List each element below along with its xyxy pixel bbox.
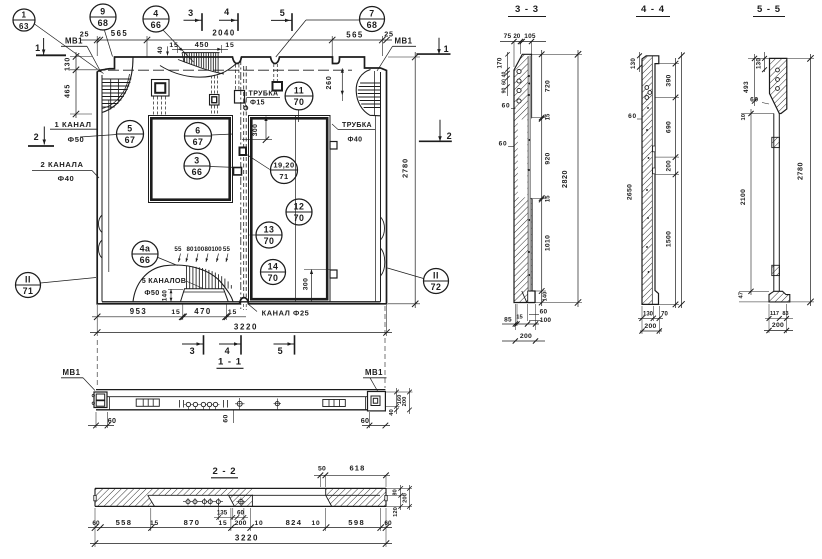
svg-text:66: 66 [140,255,151,265]
svg-text:90: 90 [502,88,508,94]
svg-text:70: 70 [268,273,279,283]
svg-text:25: 25 [384,30,394,39]
svg-text:390: 390 [666,74,673,86]
svg-text:120: 120 [393,507,399,517]
svg-text:67: 67 [125,135,136,145]
svg-text:2100: 2100 [740,189,747,205]
svg-text:МВ1: МВ1 [65,37,83,46]
svg-text:МВ1: МВ1 [63,368,81,377]
svg-text:200: 200 [644,323,656,330]
svg-text:2650: 2650 [627,184,634,200]
svg-text:493: 493 [743,81,750,93]
svg-text:3 - 3: 3 - 3 [515,4,539,15]
svg-text:300: 300 [303,278,310,291]
svg-text:КАНАЛ Ф25: КАНАЛ Ф25 [262,309,310,318]
svg-text:40: 40 [157,46,164,54]
svg-text:12: 12 [294,201,305,211]
svg-text:15: 15 [169,42,178,49]
svg-text:130: 130 [630,58,637,69]
svg-text:14: 14 [268,261,279,271]
svg-text:15: 15 [516,315,523,321]
svg-text:1: 1 [35,43,41,53]
svg-text:80: 80 [393,489,399,495]
svg-text:465: 465 [65,84,72,98]
svg-text:II: II [433,270,439,280]
svg-text:1 КАНАЛ: 1 КАНАЛ [54,120,91,129]
svg-text:10: 10 [312,520,321,527]
svg-text:100: 100 [540,317,552,324]
svg-text:450: 450 [195,40,210,49]
svg-text:МВ1: МВ1 [395,37,413,46]
svg-text:67: 67 [193,137,204,147]
svg-text:1010: 1010 [545,235,552,251]
svg-text:Ф40: Ф40 [58,174,75,183]
svg-text:60: 60 [384,520,392,527]
svg-text:55: 55 [174,246,182,253]
svg-text:565: 565 [346,31,364,40]
svg-text:5 - 5: 5 - 5 [757,4,781,15]
svg-text:4 - 4: 4 - 4 [641,4,665,15]
svg-text:68: 68 [367,20,378,30]
svg-text:50: 50 [318,466,326,473]
svg-text:690: 690 [666,121,673,133]
svg-text:1: 1 [22,10,27,19]
svg-text:100: 100 [211,246,222,253]
svg-text:953: 953 [130,307,148,316]
svg-text:10: 10 [255,520,264,527]
svg-text:Ф15: Ф15 [250,100,265,107]
svg-text:2: 2 [34,132,40,142]
svg-text:2820: 2820 [560,170,569,188]
svg-text:II: II [25,274,31,284]
svg-text:60: 60 [750,97,759,104]
svg-text:6: 6 [195,125,200,135]
svg-text:15: 15 [150,520,159,527]
svg-text:15: 15 [546,195,552,202]
svg-text:19,20: 19,20 [273,160,294,169]
svg-text:47: 47 [739,292,745,298]
svg-text:60: 60 [92,520,100,527]
svg-text:13: 13 [264,224,275,234]
svg-text:3: 3 [194,155,199,165]
svg-text:70: 70 [294,97,305,107]
svg-text:618: 618 [349,464,365,473]
svg-text:2 КАНАЛА: 2 КАНАЛА [40,160,83,169]
svg-text:15: 15 [228,309,237,316]
svg-text:71: 71 [23,286,34,296]
svg-text:83: 83 [782,311,788,317]
svg-text:130: 130 [65,57,72,71]
svg-text:4: 4 [224,7,230,17]
svg-text:920: 920 [545,152,552,164]
svg-text:70: 70 [661,312,668,318]
svg-text:5 КАНАЛОВ: 5 КАНАЛОВ [142,276,187,285]
svg-text:1: 1 [444,44,450,54]
svg-text:60: 60 [237,510,244,517]
svg-text:200: 200 [520,333,532,340]
svg-text:200: 200 [235,520,247,527]
svg-text:60: 60 [361,416,370,425]
svg-text:60: 60 [223,414,230,422]
svg-text:15: 15 [171,309,180,316]
svg-text:2780: 2780 [401,158,410,178]
svg-text:105: 105 [524,33,536,40]
svg-text:72: 72 [431,282,442,292]
svg-text:2780: 2780 [796,162,805,180]
svg-text:470: 470 [194,307,212,316]
svg-text:70: 70 [294,213,305,223]
svg-text:4а: 4а [140,243,151,253]
svg-text:Ф40: Ф40 [348,137,363,144]
svg-text:15: 15 [225,42,234,49]
svg-text:5: 5 [280,8,286,18]
svg-text:85: 85 [504,317,512,324]
svg-text:2 - 2: 2 - 2 [212,466,236,477]
svg-text:68: 68 [98,18,109,28]
svg-text:3220: 3220 [234,323,258,332]
svg-text:558: 558 [116,518,133,527]
svg-text:3: 3 [190,346,196,356]
svg-text:565: 565 [111,29,129,38]
svg-text:300: 300 [252,124,259,137]
svg-text:10: 10 [741,114,747,120]
svg-text:4: 4 [153,8,158,18]
svg-text:20: 20 [513,33,520,40]
svg-text:Ф50: Ф50 [68,135,85,144]
svg-text:598: 598 [348,518,365,527]
svg-text:2040: 2040 [212,28,235,37]
svg-text:5: 5 [127,123,132,133]
svg-text:720: 720 [545,80,552,92]
svg-text:100: 100 [194,246,205,253]
svg-text:40: 40 [389,409,395,415]
svg-text:200: 200 [666,160,673,172]
svg-text:140: 140 [543,292,549,302]
svg-text:260: 260 [326,75,333,89]
svg-text:55: 55 [223,246,231,253]
svg-text:140: 140 [162,290,169,302]
svg-text:15: 15 [219,520,228,527]
svg-text:5: 5 [278,346,284,356]
svg-text:60: 60 [499,141,508,148]
svg-text:824: 824 [286,518,303,527]
svg-text:9: 9 [100,6,105,16]
svg-text:200: 200 [772,322,784,329]
svg-text:3: 3 [188,8,194,18]
svg-text:11: 11 [294,85,304,95]
svg-text:1 - 1: 1 - 1 [218,357,242,368]
svg-text:60: 60 [502,79,508,85]
svg-text:200: 200 [402,493,408,503]
svg-text:170: 170 [497,57,504,68]
svg-text:ТРУБКА: ТРУБКА [249,91,279,98]
svg-text:70: 70 [264,236,275,246]
svg-text:870: 870 [184,518,201,527]
svg-text:71: 71 [279,172,288,181]
svg-text:75: 75 [504,33,512,40]
svg-text:7: 7 [369,8,374,18]
svg-text:66: 66 [151,20,162,30]
svg-text:60: 60 [628,113,637,120]
svg-text:60: 60 [502,103,511,110]
svg-text:3220: 3220 [235,534,259,543]
svg-text:63: 63 [19,22,29,31]
svg-text:200: 200 [402,397,408,407]
svg-text:ТРУБКА: ТРУБКА [342,122,372,129]
svg-text:МВ1: МВ1 [365,368,383,377]
svg-text:130: 130 [643,312,654,318]
svg-text:66: 66 [192,167,203,177]
svg-text:15: 15 [546,113,552,120]
svg-text:2: 2 [447,131,453,141]
svg-text:60: 60 [108,416,117,425]
svg-text:1500: 1500 [666,231,673,247]
svg-text:60: 60 [540,309,548,316]
svg-text:Ф50: Ф50 [144,288,159,297]
svg-text:4: 4 [225,346,231,356]
svg-text:130: 130 [756,58,763,69]
